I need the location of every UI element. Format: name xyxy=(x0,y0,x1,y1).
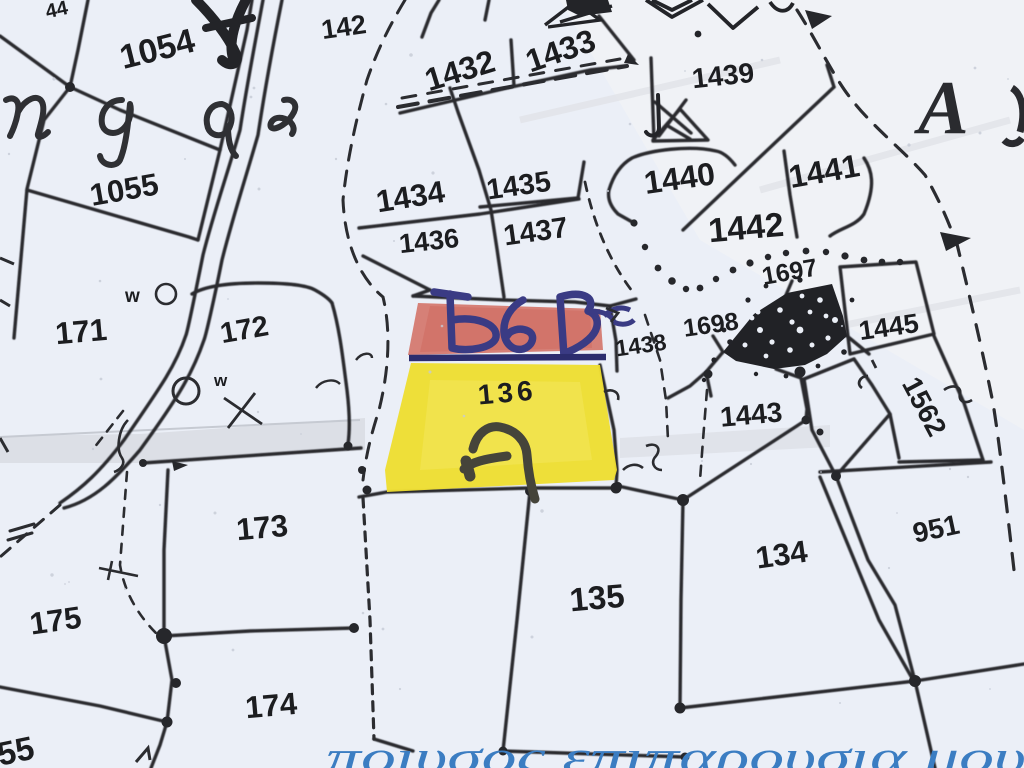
svg-text:135: 135 xyxy=(568,577,626,619)
svg-text:174: 174 xyxy=(244,686,299,725)
svg-text:A: A xyxy=(914,66,969,150)
svg-text:134: 134 xyxy=(753,534,810,576)
svg-text:1443: 1443 xyxy=(719,396,784,432)
svg-text:1439: 1439 xyxy=(690,57,755,94)
svg-text:1436: 1436 xyxy=(398,223,461,259)
svg-text:ποιυσος επιπαρουσια μου: ποιυσος επιπαρουσια μου xyxy=(326,732,1024,768)
svg-text:w: w xyxy=(124,286,140,307)
svg-text:175: 175 xyxy=(27,600,83,642)
svg-text:136: 136 xyxy=(477,375,538,411)
svg-text:171: 171 xyxy=(54,312,109,351)
svg-text:w: w xyxy=(213,371,228,390)
svg-text:142: 142 xyxy=(319,9,368,45)
svg-text:173: 173 xyxy=(235,508,290,547)
svg-text:1442: 1442 xyxy=(707,206,786,250)
